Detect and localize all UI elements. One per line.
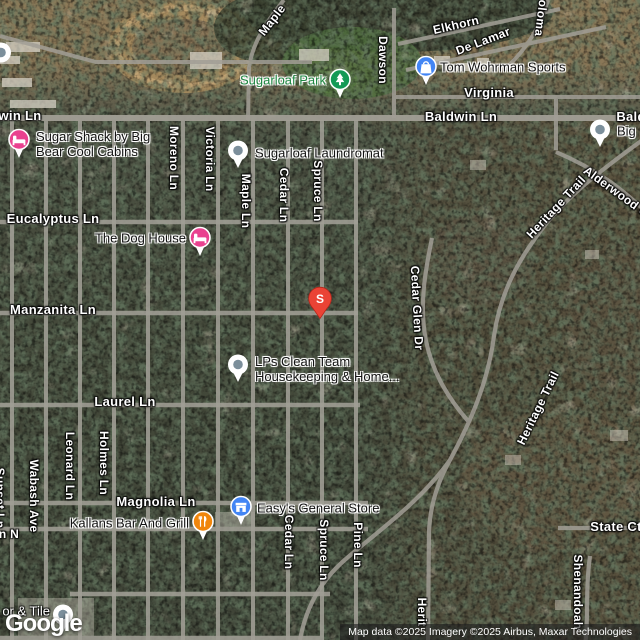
street-baldwin-ln-right: Bald [616,110,640,124]
street-sunset-ln: Sunset Ln [0,468,7,529]
marker-letter[interactable]: S [316,292,324,306]
poi-label: Tom Wohrman Sports [440,60,565,75]
poi-label: Easy's General Store [257,501,379,516]
street-magnolia-ln: Magnolia Ln [116,495,195,509]
generic-pin-icon[interactable] [225,353,251,383]
street-baldwin-ln-left: win Ln [0,109,41,123]
street-state-ct: State Ct [590,520,640,534]
lodging-bed-icon[interactable] [6,128,32,159]
street-laurel-ln: Laurel Ln [94,395,155,409]
street-spruce-ln-north: Spruce Ln [311,160,325,221]
street-leonard-ln: Leonard Ln [63,432,77,500]
street-cedar-ln-south: Cedar Ln [282,515,296,569]
shopping-bag-icon[interactable] [413,55,439,86]
street-shenandoah: Shenandoah [571,554,585,629]
storefront-icon[interactable] [228,495,254,526]
generic-pin-icon[interactable] [587,118,613,148]
attribution-text: Map data ©2025 Imagery ©2025 Airbus, Max… [348,624,632,640]
poi-label: Kallans Bar And Grill [70,516,189,531]
park-tree-icon[interactable] [327,68,353,99]
street-virginia: Virginia [464,86,514,100]
street-cedar-ln-north: Cedar Ln [277,168,291,222]
generic-pin-icon[interactable] [225,139,251,169]
restaurant-icon[interactable] [190,510,216,541]
street-fragment-n: n N [0,527,19,541]
poi-label: LPs Clean TeamHousekeeping & Home... [255,354,400,384]
street-pine-ln: Pine Ln [351,522,365,567]
poi-label: The Dog House [95,231,186,246]
street-eucalyptus-ln: Eucalyptus Ln [7,212,100,226]
poi-label: Sugarloaf Park [240,73,326,88]
street-wabash-ave: Wabash Ave [27,459,41,532]
street-maple-ln: Maple Ln [239,174,253,228]
street-baldwin-ln: Baldwin Ln [425,110,497,124]
street-moreno-ln: Moreno Ln [167,126,181,190]
google-logo[interactable]: Google [5,612,82,636]
street-victoria-ln: Victoria Ln [203,126,217,191]
street-manzanita-ln: Manzanita Ln [10,303,96,317]
poi-label: Sugar Shack by BigBear Cool Cabins [36,129,150,159]
map-canvas[interactable]: Maple Elkhorn De Lamar Dawson oloma Virg… [0,0,640,640]
poi-label: Big [617,124,636,139]
partial-pin-icon [0,41,14,71]
street-heritage-bottom: Herit [415,598,429,627]
street-holmes-ln: Holmes Ln [97,431,111,495]
street-spruce-ln-south: Spruce Ln [317,519,331,580]
attribution: Map data ©2025 Imagery ©2025 Airbus, Max… [340,624,640,640]
poi-label: Sugarloaf Laundromat [255,146,384,161]
lodging-bed-icon[interactable] [187,226,213,257]
street-dawson: Dawson [376,36,390,84]
